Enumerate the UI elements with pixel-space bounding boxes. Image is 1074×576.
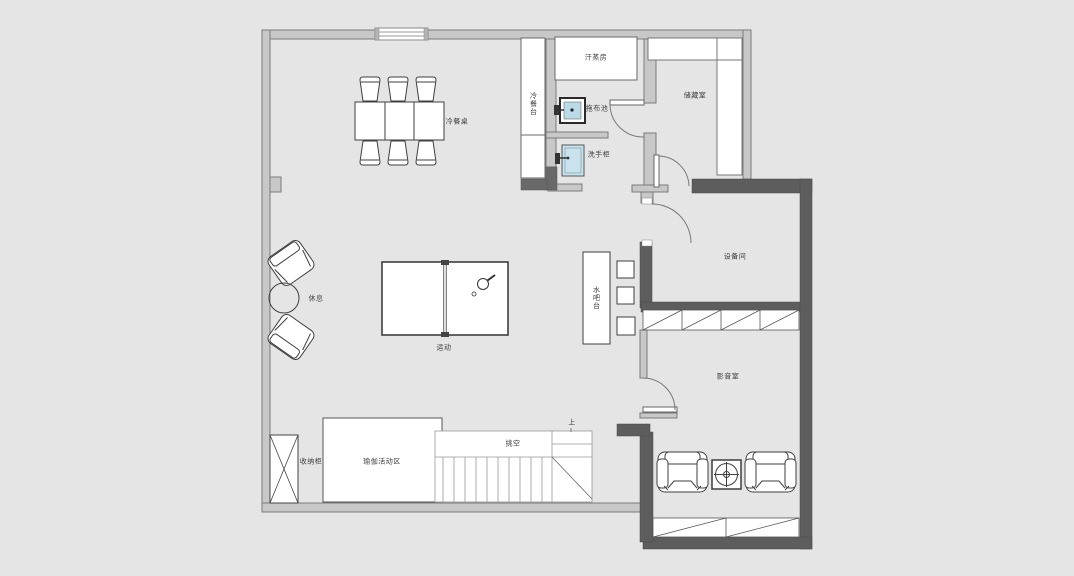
rest-armchair-bottom	[266, 312, 317, 362]
label-sauna-room: 汗蒸房	[585, 55, 608, 62]
media-door-arc	[643, 378, 675, 410]
label-storage-cabinet: 收纳柜	[300, 459, 323, 466]
bar-stool	[617, 317, 635, 335]
label-sport-area: 运动	[437, 345, 452, 352]
label-stairs-up: 上	[568, 420, 576, 427]
floor-plan-drawing	[0, 0, 1074, 576]
media-armchair-right	[745, 452, 796, 492]
dining-chairs-top	[360, 77, 436, 101]
label-av-room: 影音室	[717, 374, 740, 381]
rest-round-table	[269, 283, 299, 313]
wash-cabinet-fixture	[555, 145, 584, 176]
pingpong-table	[382, 260, 508, 337]
bar-stool	[617, 287, 634, 304]
label-rest-area: 休息	[309, 296, 324, 303]
equipment-door-arc	[652, 204, 691, 243]
label-mop-sink: 拖布池	[586, 106, 609, 113]
label-storage-room: 储藏室	[684, 93, 707, 100]
dining-chairs-bottom	[360, 141, 436, 165]
interior-walls-light	[546, 39, 677, 418]
storage-room-cabinets	[648, 38, 742, 175]
media-armchair-left	[657, 452, 708, 492]
rest-armchair-top	[266, 238, 317, 288]
label-void-space: 挑空	[506, 441, 521, 448]
media-side-table	[712, 460, 741, 489]
pingpong-net	[444, 262, 447, 335]
paddle	[478, 279, 489, 290]
floor-plan-canvas: 冷餐桌 冷餐台 汗蒸房 拖布池 洗手柜 储藏室 设备间 休息 运动 水吧台 影音…	[0, 0, 1074, 576]
hatched-cabinet-row-top	[643, 310, 799, 330]
window-top	[375, 28, 428, 40]
hatched-cabinet-row-bottom	[653, 518, 799, 537]
dining-table	[355, 102, 444, 140]
label-yoga-area: 瑜伽活动区	[363, 459, 401, 466]
storage-cabinet-x	[270, 435, 298, 503]
mop-sink-fixture	[554, 98, 585, 123]
bar-stool	[617, 261, 634, 278]
label-water-bar: 水吧台	[593, 286, 600, 310]
dining-set	[355, 77, 444, 165]
media-room-furniture	[657, 452, 796, 492]
water-bar-counter	[583, 252, 635, 344]
label-dining-table: 冷餐桌	[446, 119, 469, 126]
mop-door-arc	[610, 105, 644, 137]
label-equipment-room: 设备间	[724, 254, 747, 261]
label-wash-cabinet: 洗手柜	[588, 152, 611, 159]
label-cold-buffet-counter: 冷餐台	[530, 92, 537, 116]
storage-door-arc	[659, 156, 689, 186]
